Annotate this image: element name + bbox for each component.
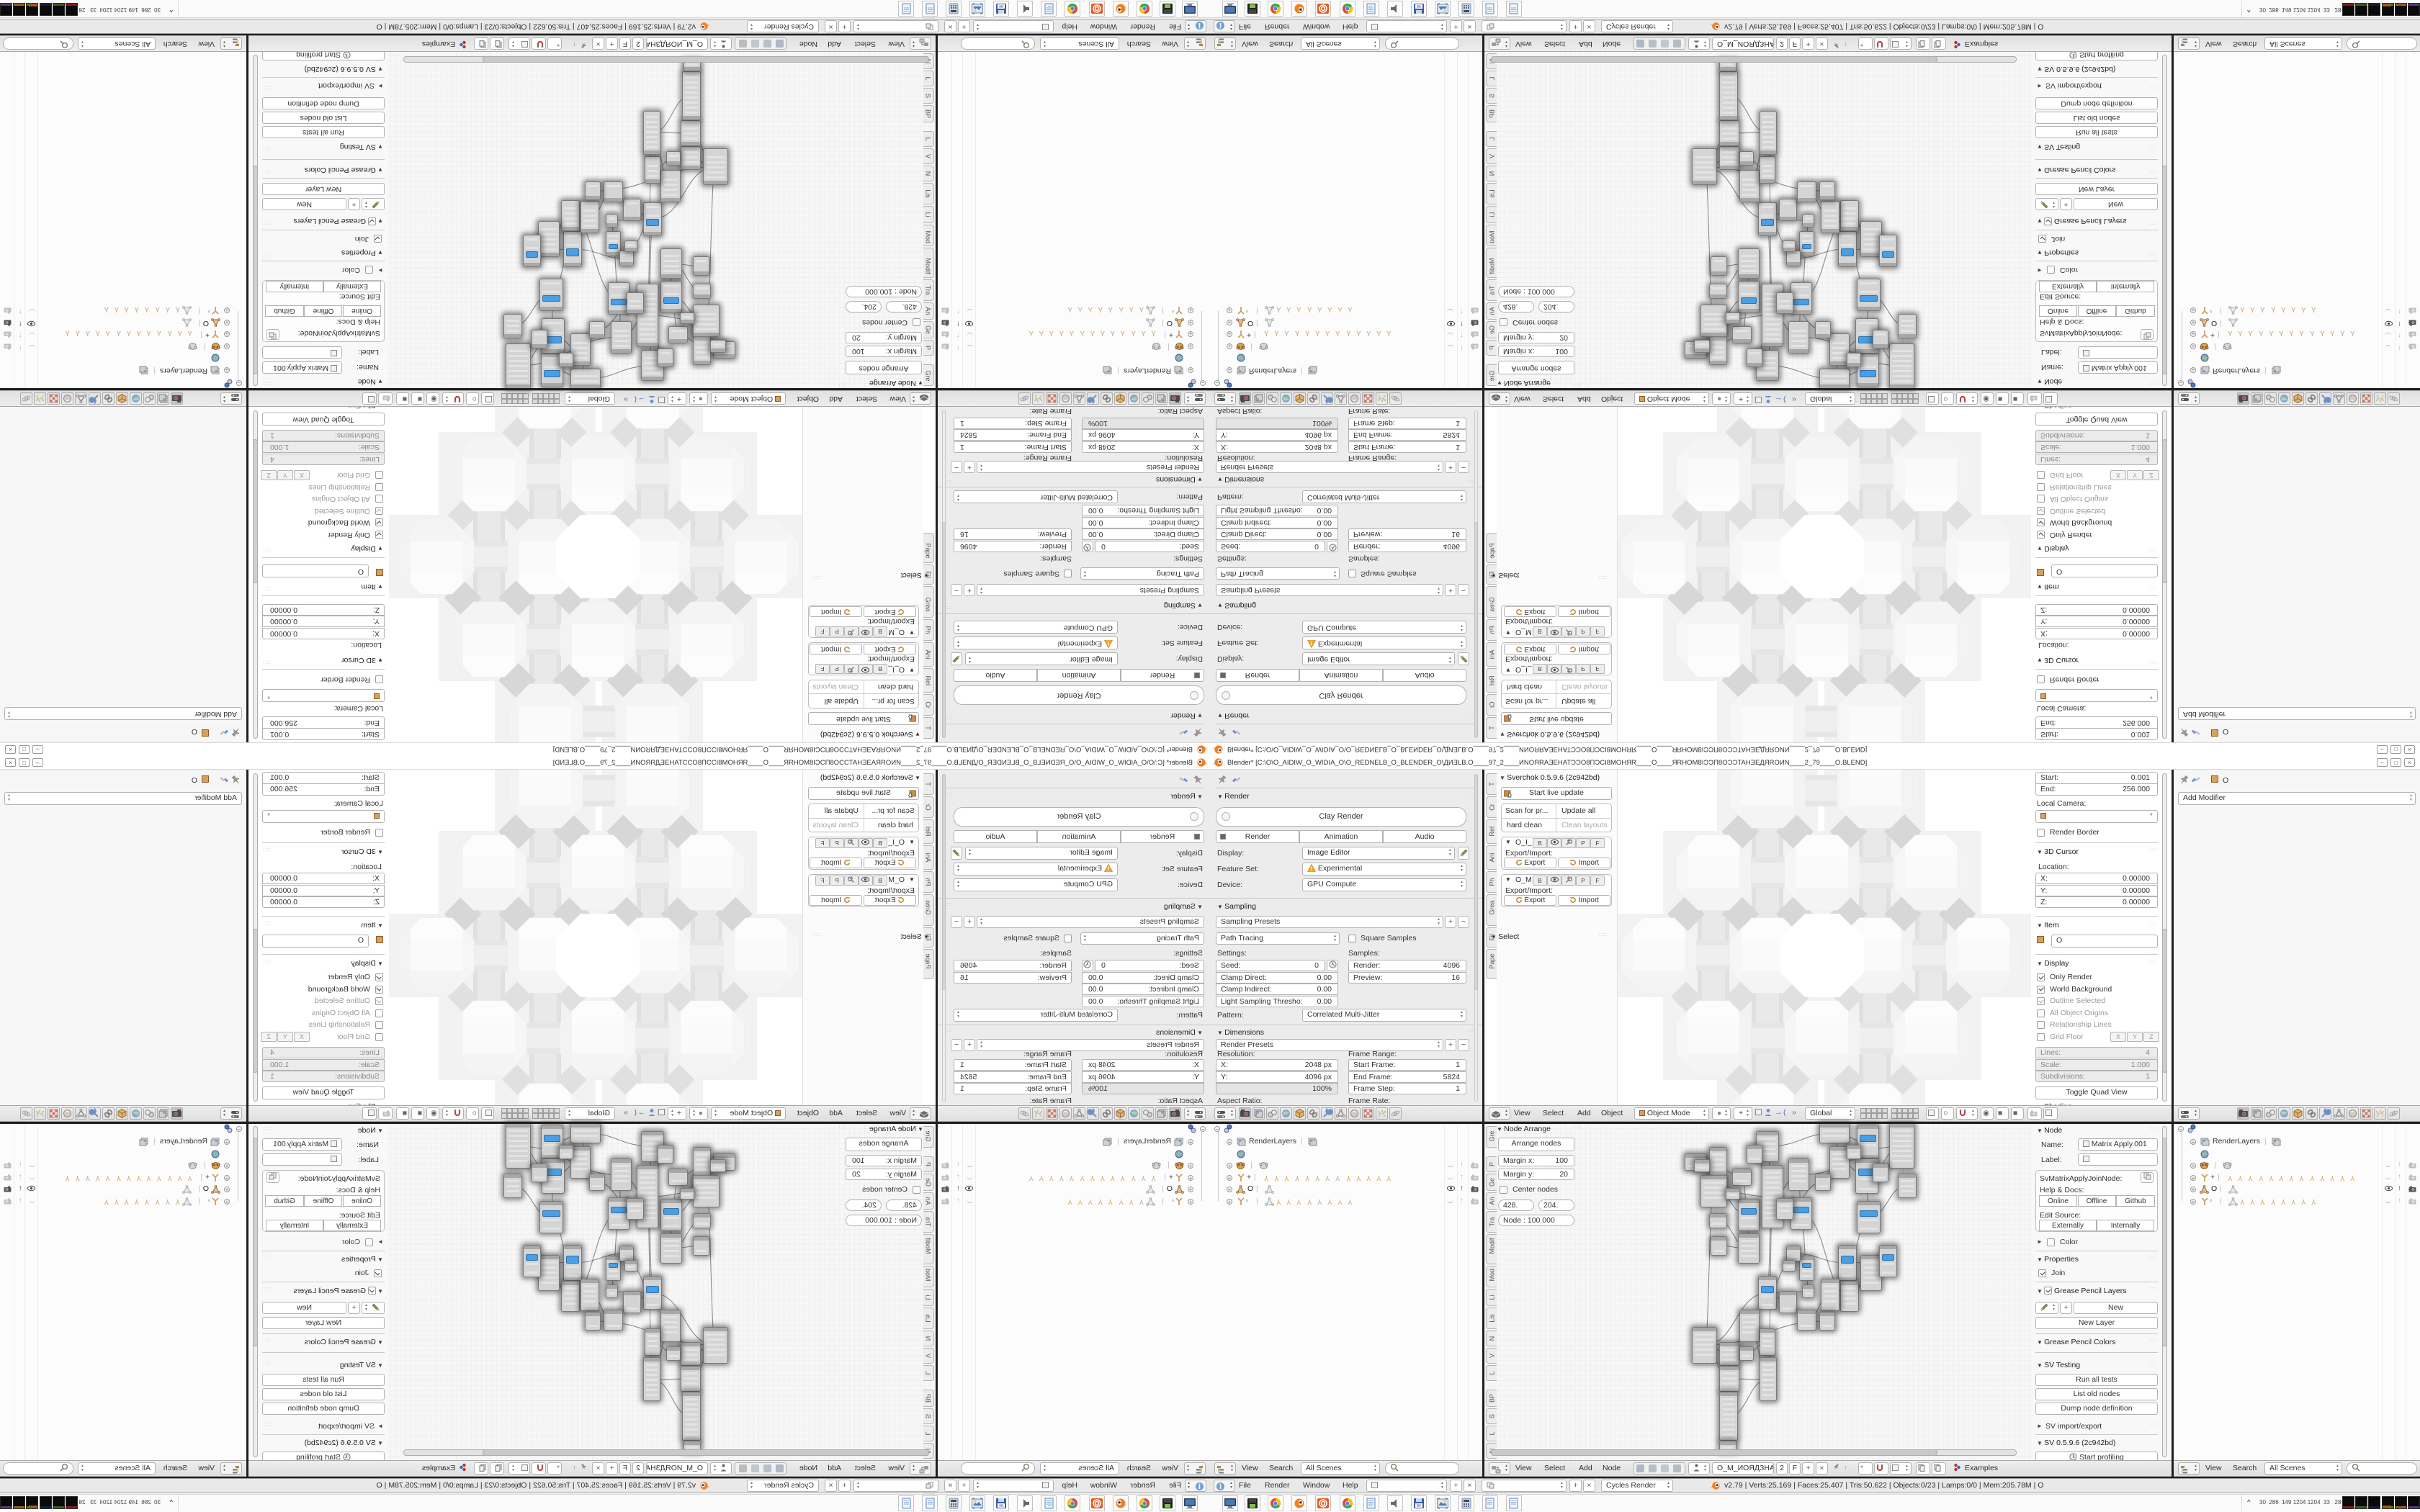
svg-text:64: 64: [1417, 1504, 1421, 1508]
svg-text:64: 64: [999, 1504, 1003, 1508]
svg-text:64: 64: [999, 4, 1003, 8]
svg-text:64: 64: [1417, 4, 1421, 8]
